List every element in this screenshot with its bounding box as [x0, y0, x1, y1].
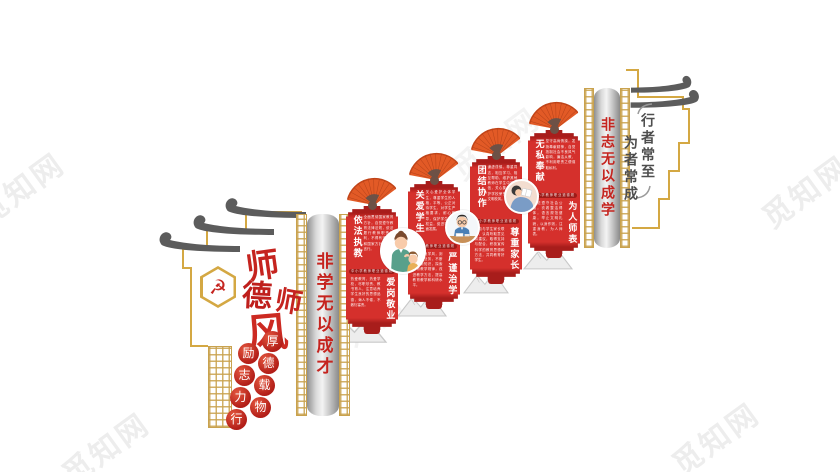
pillar-fret [584, 88, 594, 248]
photo-medallion [504, 179, 539, 214]
banner-heading-top: 依法执教 [351, 215, 361, 266]
seal-badge: 行 [226, 409, 247, 430]
roof-eave-icon [631, 90, 699, 108]
roof-eave-icon [631, 76, 691, 93]
banner-bottom-section: 模范遵守社会公德，衣着整洁得体，语言规范健康，举止文明礼貌，以身作则，注重身教，… [533, 201, 576, 246]
roof-eave-icon [226, 198, 306, 218]
right-motto-line: 为者常成 [620, 135, 640, 203]
party-emblem-badge-inner: ☭ [203, 269, 234, 305]
fan-knob-icon [550, 125, 559, 134]
banner-heading-bottom: 严谨治学 [445, 252, 455, 297]
poster-canvas: 觅知网 觅知网 觅知网 觅知网 觅知网 觅知网 ☭ 师 德 师 风 厚 德 载 … [0, 0, 840, 472]
left-pillar: 非学无以成才 [296, 214, 350, 416]
right-motto-line: 行者常至 [637, 113, 657, 181]
seal-badge: 载 [254, 375, 275, 396]
banner-heading-top: 无私奉献 [533, 139, 543, 190]
banner-bottom-section: 主动与学生家长联系，认真听取意见和建议，取得支持与配合，积极宣传科学的教育思想和… [475, 227, 518, 272]
banner-body-text-bottom: 主动与学生家长联系，认真听取意见和建议，取得支持与配合，积极宣传科学的教育思想和… [475, 227, 505, 272]
banner-heading-top: 团结协作 [475, 165, 485, 216]
party-emblem-icon: ☭ [209, 277, 227, 297]
photo-medallion [380, 228, 426, 274]
seal-badge: 厚 [262, 331, 283, 352]
pillar-cylinder: 非志无以成学 [594, 88, 620, 248]
pillar-motto-text: 非志无以成学 [597, 117, 617, 219]
fan-knob-icon [430, 176, 439, 185]
seal-badge: 志 [234, 365, 255, 386]
pillar-motto-text: 非学无以成才 [311, 252, 336, 378]
fan-knob-icon [492, 151, 501, 160]
banner-body-text-bottom: 热爱教育、热爱学校，尽职尽责、教书育人，注意培养学生良好的思想品德，诲人不倦，不… [351, 277, 381, 322]
roof-eave-icon [160, 232, 240, 252]
reader-with-book-illustration [506, 181, 537, 212]
pillar-cylinder: 非学无以成才 [307, 214, 339, 416]
seal-badge: 物 [250, 397, 271, 418]
banner-bottom-section: 热爱教育、热爱学校，尽职尽责、教书育人，注意培养学生良好的思想品德，诲人不倦，不… [351, 277, 394, 322]
banner-divider-band: 中小学教师职业道德规范 [473, 219, 519, 225]
seal-badge: 励 [238, 343, 259, 364]
fan-knob-icon [368, 201, 377, 210]
banner-body-text-top: 坚守高尚情操，发扬奉献精神，自觉抵制社会不良风气影响，廉洁从教，不利用职责之便谋… [546, 139, 576, 190]
teacher-with-students-illustration [382, 230, 424, 272]
banner-heading-bottom: 爱岗敬业 [383, 277, 393, 322]
teacher-studying-at-desk-illustration [447, 212, 478, 243]
photo-medallion [445, 210, 480, 245]
banner-top-section: 无私奉献 坚守高尚情操，发扬奉献精神，自觉抵制社会不良风气影响，廉洁从教，不利用… [533, 139, 576, 190]
seal-badge: 力 [230, 387, 251, 408]
seal-badge: 德 [258, 353, 279, 374]
roof-eave-icon [194, 215, 274, 235]
banner-heading-bottom: 为人师表 [565, 201, 575, 246]
banner-body-text-bottom: 模范遵守社会公德，衣着整洁得体，语言规范健康，举止文明礼貌，以身作则，注重身教，… [533, 201, 563, 246]
banner-heading-bottom: 尊重家长 [507, 227, 517, 272]
banner-divider-band: 中小学教师职业道德规范 [349, 269, 395, 275]
